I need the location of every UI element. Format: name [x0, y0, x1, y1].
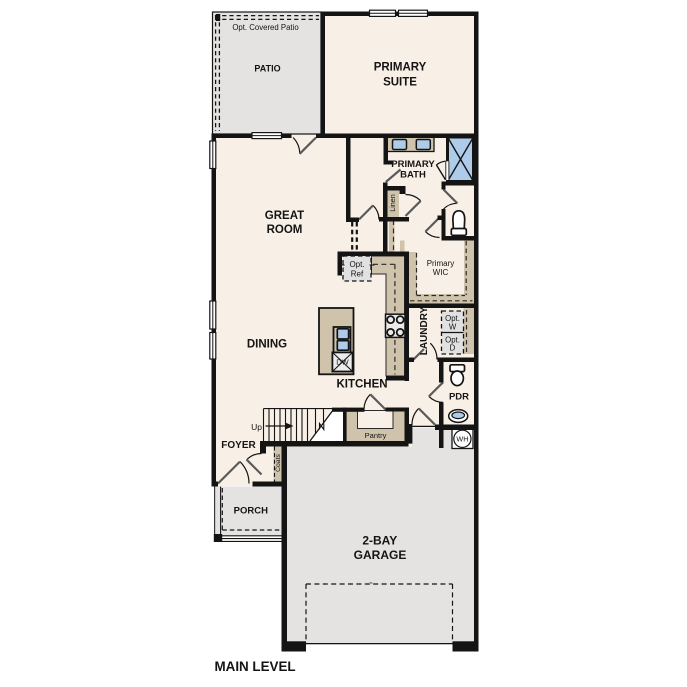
svg-text:LAUNDRY: LAUNDRY — [419, 306, 430, 355]
svg-text:ROOM: ROOM — [267, 224, 303, 236]
svg-text:Coats: Coats — [275, 454, 282, 472]
svg-text:PRIMARY: PRIMARY — [374, 62, 427, 74]
svg-text:2-BAY: 2-BAY — [362, 533, 397, 547]
svg-text:Primary: Primary — [427, 259, 455, 268]
svg-text:PATIO: PATIO — [254, 64, 280, 74]
svg-text:WH: WH — [456, 435, 468, 444]
svg-text:GARAGE: GARAGE — [354, 548, 407, 562]
svg-text:BATH: BATH — [400, 170, 426, 181]
svg-text:Ref: Ref — [351, 270, 364, 279]
svg-text:DW: DW — [336, 358, 349, 367]
svg-text:MAIN LEVEL: MAIN LEVEL — [215, 659, 296, 674]
svg-text:Pantry: Pantry — [365, 431, 387, 440]
svg-text:GREAT: GREAT — [265, 210, 304, 222]
svg-text:Opt.: Opt. — [349, 260, 364, 269]
svg-text:PRIMARY: PRIMARY — [391, 159, 435, 170]
svg-text:Linen: Linen — [388, 194, 397, 212]
svg-text:FOYER: FOYER — [221, 440, 256, 451]
svg-text:KITCHEN: KITCHEN — [336, 379, 387, 391]
svg-text:W: W — [449, 323, 457, 332]
svg-text:PDR: PDR — [449, 391, 469, 402]
svg-text:SUITE: SUITE — [383, 77, 417, 89]
svg-text:D: D — [450, 344, 456, 353]
svg-text:Up: Up — [251, 422, 262, 432]
svg-text:Opt. Covered Patio: Opt. Covered Patio — [232, 23, 299, 32]
svg-text:DINING: DINING — [247, 339, 287, 351]
svg-text:PORCH: PORCH — [234, 505, 268, 516]
svg-text:WIC: WIC — [433, 268, 449, 277]
